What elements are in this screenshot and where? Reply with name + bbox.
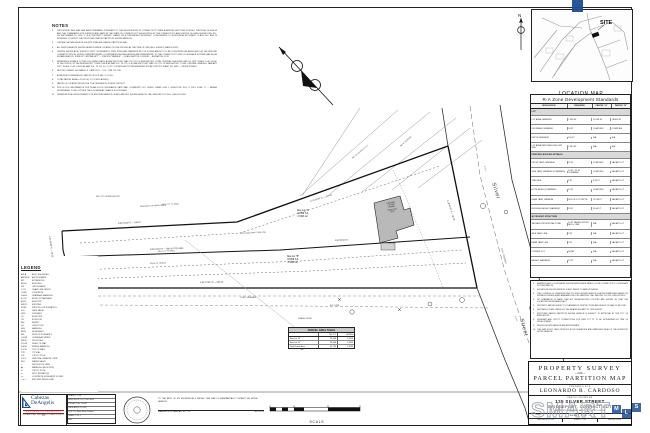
zone-cell-parcel-b: N/A xyxy=(611,137,630,140)
zone-cell-parcel-a: N/A xyxy=(592,146,611,149)
mls-watermark-square-top xyxy=(572,0,583,12)
zone-cell-required: 7,500 SF xyxy=(568,146,593,149)
lot-b-label: New Lot "B"18,869 S.F.0.4332 Ac. xyxy=(276,256,310,265)
zone-cell-parcel-a xyxy=(592,216,611,217)
location-map: SITE xyxy=(531,9,633,82)
title-line-1: PROPERTY SURVEY xyxy=(529,365,631,372)
scale-bar-graphic xyxy=(262,405,372,414)
zone-cell-required: 7,500 SF xyxy=(568,118,593,121)
zone-table-row: REAR YARD LINE 3 FT N/A VACANT LOT xyxy=(531,239,630,248)
zone-cell-regulation: SIDE YARD, MINIMUM (COMBINED) xyxy=(531,171,568,174)
zone-cell-parcel-b: VACANT LOT xyxy=(611,260,630,263)
drawing-info-fields: SCALE: 1" = 20' FIELD BOOK: 173 / PGS. 4… xyxy=(67,394,116,424)
surveyor-name: WASHINGTON CABEZAS, JR., L.S. xyxy=(158,411,190,413)
notes-panel: NOTES 1. THIS SURVEY AND MAP HAS BEEN PR… xyxy=(52,23,217,197)
zone-cell-parcel-b: VACANT LOT xyxy=(611,241,630,244)
mls-watermark-square: S xyxy=(632,403,641,412)
site-note-item: 6. WETLANDS, IF ANY, WERE NOT DELINEATED… xyxy=(533,309,628,311)
mls-watermark-square: M xyxy=(612,405,621,414)
firm-logo-box: Cabezas DeAngelis ENGINEERS & SURVEYORS … xyxy=(20,394,67,426)
site-note-text: THIS MAP IS NOT VALID WITHOUT A LIVE SIG… xyxy=(537,329,628,334)
zone-cell-regulation: PRINCIPAL BUILDING SETBACK xyxy=(531,154,568,157)
zone-cell-parcel-a: 22,656 SF xyxy=(592,118,611,121)
zone-cell-regulation: FRONTAGE, MINIMUM xyxy=(531,127,568,130)
site-note-item: 1. BEARINGS AND COORDINATES SHOWN HEREON… xyxy=(533,283,628,288)
zone-cell-parcel-a: 6.28 FT xyxy=(592,180,611,183)
zone-cell-parcel-b: VACANT LOT xyxy=(611,223,630,226)
area-table-row: Total Parcel Area 41,525 0.9533 xyxy=(289,345,354,348)
notes-title: NOTES xyxy=(52,23,217,28)
note-text: PARCEL IS LOCATED WITHIN THE "R-A" RESID… xyxy=(57,83,217,86)
area-cell-sqft: 18,869 xyxy=(319,341,338,344)
zone-table-row: REAR YARD, MINIMUM 30% OF LOT DEPTH 125.… xyxy=(531,196,630,205)
zone-cell-parcel-a: 26.40 FT xyxy=(592,207,611,210)
note-text: THE MAP SHOWN HEREON IS A SITE PLAN AND … xyxy=(57,42,217,45)
legend-term: EXISTING FENCE LINE xyxy=(32,379,98,382)
zone-table-row: FRONT YARD, MINIMUM 25 FT COMPLIES VACAN… xyxy=(531,159,630,168)
note-item: 5. REFERENCE IS MADE TO THE FOLLOWING MA… xyxy=(52,61,217,69)
zone-cell-regulation: SETBACK FROM STREET LINE xyxy=(531,223,568,226)
zone-table-row: HEIGHT, MAXIMUM 15 FT N/A VACANT LOT xyxy=(531,257,630,266)
zone-cell-required: 50 FT xyxy=(568,127,593,130)
zone-cell-regulation: REAR YARD LINE xyxy=(531,241,568,244)
zone-cell-regulation: ONE SIDE xyxy=(531,180,568,183)
client-name: LEONARDO R. CARDOSO xyxy=(529,388,631,396)
area-cell-acres: 0.9533 xyxy=(338,345,354,348)
notes-list: 1. THIS SURVEY AND MAP HAS BEEN PREPARED… xyxy=(52,30,217,97)
zone-cell-parcel-b: COMPLIES xyxy=(611,127,630,130)
zone-cell-parcel-a: COMPLIES xyxy=(592,189,611,192)
note-text: THIS SURVEY AND MAP HAS BEEN PREPARED PU… xyxy=(57,30,217,41)
firm-address: 3156 MAIN STREET • BRIDGEPORT, CT 06606 … xyxy=(21,415,66,417)
site-notes-list: 1. BEARINGS AND COORDINATES SHOWN HEREON… xyxy=(533,283,628,334)
area-col-sqft: SQ. FT. xyxy=(319,333,338,336)
zone-cell-parcel-b xyxy=(611,155,630,156)
zone-col-parcel-a: PARCEL "A" xyxy=(593,104,612,108)
zone-cell-required: 3 FT xyxy=(568,232,593,235)
zone-cell-parcel-a: COMPLIES xyxy=(592,161,611,164)
lot-b-label-line: 0.4332 Ac. xyxy=(276,262,310,265)
zone-cell-parcel-b: VACANT LOT xyxy=(611,161,630,164)
site-note-text: ELEVATIONS SHOWN HEREON, IF ANY, REFER T… xyxy=(537,289,628,291)
note-text: ALL IMPROVEMENTS SHOWN HEREON WERE LOCAT… xyxy=(57,47,217,50)
zone-cell-parcel-b: 18,869 SF xyxy=(611,118,630,121)
zone-cell-parcel-a: N/A xyxy=(592,232,611,235)
certification-block: TO THE BEST OF MY KNOWLEDGE & BELIEF, TH… xyxy=(158,398,270,424)
zone-table-row: LOT AREA, MINIMUM 7,500 SF 22,656 SF 18,… xyxy=(531,116,630,125)
zone-cell-parcel-b: VACANT LOT xyxy=(611,189,630,192)
zone-cell-parcel-a: N/A xyxy=(592,137,611,140)
mls-watermark-text: SMART xyxy=(531,400,611,421)
site-note-item: 4. NO GUARANTEE IS MADE THAT ALL UNDERGR… xyxy=(533,299,628,304)
zone-cell-regulation: FRONT YARD, MINIMUM xyxy=(531,161,568,164)
zone-cell-regulation: LOT AREA PER DWELLING UNIT, MIN. xyxy=(531,145,568,150)
zone-table-row: BOTH SIDES (COMBINED) 16 FT COMPLIES VAC… xyxy=(531,186,630,195)
zone-table-row: LOT AREA PER DWELLING UNIT, MIN. 7,500 S… xyxy=(531,143,630,152)
zone-cell-parcel-a: N/A xyxy=(592,223,611,226)
site-notes-panel: 1. BEARINGS AND COORDINATES SHOWN HEREON… xyxy=(530,280,631,359)
zone-cell-parcel-a: N/A xyxy=(592,260,611,263)
legend-row: —x— EXISTING FENCE LINE xyxy=(21,379,98,382)
certification-text: TO THE BEST OF MY KNOWLEDGE & BELIEF, TH… xyxy=(158,398,258,403)
site-note-item: 5. PROPERTY MAY BE SUBJECT TO EASEMENTS,… xyxy=(533,305,628,307)
mls-watermark-squares: MLS xyxy=(611,400,641,418)
zone-cell-required: 6 FT xyxy=(568,180,593,183)
legend-title: LEGEND xyxy=(21,265,41,271)
legend-list: A.K.A. ALSO KNOWN AS APPROX. APPROXIMATE… xyxy=(21,274,98,382)
zone-cell-required: 10 FT BEHIND FRONT BLDG. LINE xyxy=(568,222,593,227)
zone-cell-regulation: HEIGHT, MAXIMUM xyxy=(531,260,568,263)
area-col-blank xyxy=(289,333,319,336)
zone-col-required: REQUIRED xyxy=(568,104,593,108)
zone-cell-parcel-b: VACANT LOT xyxy=(611,251,630,254)
scale-bar-label: SCALE xyxy=(262,420,372,424)
zone-cell-parcel-b xyxy=(611,111,630,112)
zone-cell-regulation: LOT xyxy=(531,110,568,113)
graphic-scale-bar: SCALE xyxy=(262,401,372,421)
site-note-item: 8. DRIVEWAY AND UTILITY CONNECTIONS FOR … xyxy=(533,319,628,324)
zone-cell-required xyxy=(568,216,593,217)
note-item: 8. TOTAL PARCEL AREA = 41,525 SQ. FT. (0… xyxy=(52,79,217,82)
zone-cell-parcel-a: 125.46 FT xyxy=(592,198,611,201)
zone-cell-required: 10 FT / 25 FT COMBINED xyxy=(568,170,593,175)
map-north-arrow-icon: N xyxy=(517,12,525,52)
zone-standards-table: R-A Zone Development Standards REGULATIO… xyxy=(530,94,631,278)
firm-logo-icon xyxy=(22,396,31,408)
certification-signature-line: WASHINGTON CABEZAS, JR., L.S. No. 70576 xyxy=(158,410,264,413)
zone-cell-parcel-b: VACANT LOT xyxy=(611,207,630,210)
note-item: 4. UNLESS SHOWN AS A "SURVEY POINT", MON… xyxy=(52,51,217,59)
zone-table-title: R-A Zone Development Standards xyxy=(531,95,630,104)
note-item: 6. RECORD OWNER: LEONARDO R. CARDOSO — V… xyxy=(52,70,217,73)
zone-table-row: DEPTH, MINIMUM 100 FT N/A N/A xyxy=(531,134,630,143)
zone-table-row: SETBACK FROM STREET LINE 10 FT BEHIND FR… xyxy=(531,220,630,229)
site-note-text: WETLANDS, IF ANY, WERE NOT DELINEATED AS… xyxy=(537,309,628,311)
zone-cell-required xyxy=(568,111,593,112)
legend-abbr: —x— xyxy=(21,379,32,382)
zone-cell-required: NONE xyxy=(568,251,593,254)
site-note-item: 3. THE LOCATION OF UNDERGROUND UTILITIES… xyxy=(533,293,628,298)
note-item: 9. PARCEL IS LOCATED WITHIN THE "R-A" RE… xyxy=(52,83,217,86)
zone-cell-regulation: BUILDING HEIGHT, MAXIMUM xyxy=(531,207,568,210)
zone-cell-parcel-a: N/A xyxy=(592,251,611,254)
zone-cell-regulation: ACCESSORY STRUCTURE xyxy=(531,215,568,218)
note-text: TOTAL PARCEL AREA = 41,525 SQ. FT. (0.95… xyxy=(57,79,217,82)
zone-cell-required: 35 FT xyxy=(568,207,593,210)
site-note-text: NO GUARANTEE IS MADE THAT ALL UNDERGROUN… xyxy=(537,299,628,304)
area-table-rows: New Lot "A" 22,656 0.5201 New Lot "B" 18… xyxy=(289,337,354,348)
area-cell-acres: 0.4332 xyxy=(338,341,354,344)
zone-cell-required: 25 FT xyxy=(568,161,593,164)
zone-col-regulation: REGULATION xyxy=(531,104,568,108)
zone-cell-required: 100 FT xyxy=(568,137,593,140)
site-note-item: 7. PROPOSED PARCEL PARTITION SHOWN HEREO… xyxy=(533,313,628,318)
site-marker xyxy=(591,32,599,38)
note-item: 7. ASSESSOR'S REFERENCE: MAP 86 / BLOCK … xyxy=(52,75,217,78)
zone-cell-required: 30% OF LOT DEPTH xyxy=(568,198,593,201)
note-text: REFERENCE IS MADE TO THE FOLLOWING MAPS:… xyxy=(57,61,217,69)
area-cell-label: Total Parcel Area xyxy=(289,345,319,348)
zone-cell-parcel-b: VACANT LOT xyxy=(611,198,630,201)
legend-panel: LEGEND A.K.A. ALSO KNOWN AS APPROX. APPR… xyxy=(21,256,98,392)
zone-cell-parcel-a: COMPLIES xyxy=(592,127,611,130)
firm-tagline: ENGINEERS & SURVEYORS xyxy=(23,410,64,415)
zone-cell-regulation: CORNER LOT xyxy=(531,251,568,254)
zone-cell-parcel-b: VACANT LOT xyxy=(611,171,630,174)
survey-sheet-page: NOTES 1. THIS SURVEY AND MAP HAS BEEN PR… xyxy=(0,0,650,433)
note-item: 3. ALL IMPROVEMENTS SHOWN HEREON WERE LO… xyxy=(52,47,217,50)
zone-table-row: CORNER LOT NONE N/A VACANT LOT xyxy=(531,248,630,257)
note-text: UNLESS SHOWN AS A "SURVEY POINT", MONUME… xyxy=(57,51,217,59)
mls-watermark: SMART MLS xyxy=(531,400,641,421)
drawing-info-field: REV: xyxy=(68,419,115,422)
area-cell-sqft: 22,656 xyxy=(319,337,338,340)
site-note-item: 10. THIS MAP IS NOT VALID WITHOUT A LIVE… xyxy=(533,329,628,334)
zone-cell-parcel-b: N/A xyxy=(611,146,630,149)
site-label: SITE xyxy=(600,20,613,26)
firm-name: Cabezas DeAngelis xyxy=(31,396,54,408)
zone-cell-regulation: LOT AREA, MINIMUM xyxy=(531,118,568,121)
site-note-text: BEARINGS AND COORDINATES SHOWN HEREON AR… xyxy=(537,283,628,288)
zone-cell-parcel-b: VACANT LOT xyxy=(611,232,630,235)
zone-table-row: BUILDING HEIGHT, MAXIMUM 35 FT 26.40 FT … xyxy=(531,205,630,214)
area-cell-label: New Lot "B" xyxy=(289,341,319,344)
area-cell-label: New Lot "A" xyxy=(289,337,319,340)
zone-cell-regulation: BOTH SIDES (COMBINED) xyxy=(531,189,568,192)
zone-col-parcel-b: PARCEL "B" xyxy=(612,104,630,108)
note-item: 11. UNDERGROUND IMPROVEMENTS OR ENCROACH… xyxy=(52,94,217,97)
site-note-text: THE LOCATION OF UNDERGROUND UTILITIES SH… xyxy=(537,293,628,298)
area-cell-acres: 0.5201 xyxy=(338,337,354,340)
zone-cell-regulation: DEPTH, MINIMUM xyxy=(531,137,568,140)
lot-a-label-line: 0.5201 Ac. xyxy=(286,216,320,219)
zone-cell-regulation: SIDE YARD LINE xyxy=(531,232,568,235)
site-note-item: 2. ELEVATIONS SHOWN HEREON, IF ANY, REFE… xyxy=(533,289,628,291)
zone-table-row: SIDE YARD LINE 3 FT N/A VACANT LOT xyxy=(531,230,630,239)
lot-a-label: New Lot "A"22,656 S.F.0.5201 Ac. xyxy=(286,210,320,219)
zone-cell-parcel-a: N/A xyxy=(592,241,611,244)
site-note-text: PROPERTY MAY BE SUBJECT TO EASEMENTS, RE… xyxy=(537,305,628,307)
parcel-area-table: PARCEL AREA TABLE SQ. FT. ACRES New Lot … xyxy=(288,327,355,349)
zone-cell-required: 3 FT xyxy=(568,241,593,244)
note-item: 2. THE MAP SHOWN HEREON IS A SITE PLAN A… xyxy=(52,42,217,45)
zone-cell-parcel-a: COMPLIES xyxy=(592,171,611,174)
note-item: 10. SITE FLOOD INFORMATION PER FEMA FLOO… xyxy=(52,87,217,92)
zone-table-row: SIDE YARD, MINIMUM (COMBINED) 10 FT / 25… xyxy=(531,168,630,177)
zone-cell-parcel-a xyxy=(592,155,611,156)
site-note-text: DRIVEWAY AND UTILITY CONNECTIONS FOR NEW… xyxy=(537,319,628,324)
zone-cell-parcel-b: VACANT LOT xyxy=(611,180,630,183)
area-cell-sqft: 41,525 xyxy=(319,345,338,348)
zone-cell-required xyxy=(568,155,593,156)
site-note-text: PROPOSED PARCEL PARTITION SHOWN HEREON I… xyxy=(537,313,628,318)
zone-table-row: ONE SIDE 6 FT 6.28 FT VACANT LOT xyxy=(531,177,630,186)
mls-watermark-square: L xyxy=(622,409,631,418)
zone-table-row: FRONTAGE, MINIMUM 50 FT COMPLIES COMPLIE… xyxy=(531,125,630,134)
firm-name-2: DeAngelis xyxy=(31,401,54,407)
location-map-streets: SITE xyxy=(532,10,632,81)
note-item: 1. THIS SURVEY AND MAP HAS BEEN PREPARED… xyxy=(52,30,217,41)
zone-cell-parcel-a xyxy=(592,111,611,112)
title-line-2: PARCEL PARTITION MAP xyxy=(529,375,631,385)
zone-table-rows: LOT LOT AREA, MINIMUM 7,500 SF 22,656 SF… xyxy=(531,109,630,266)
note-text: ASSESSOR'S REFERENCE: MAP 86 / BLOCK 884… xyxy=(57,75,217,78)
zone-cell-required: 15 FT xyxy=(568,260,593,263)
zone-cell-required: 16 FT xyxy=(568,189,593,192)
zone-cell-regulation: REAR YARD, MINIMUM xyxy=(531,198,568,201)
area-col-acres: ACRES xyxy=(338,333,354,336)
zone-cell-parcel-b xyxy=(611,216,630,217)
note-text: RECORD OWNER: LEONARDO R. CARDOSO — VOL.… xyxy=(57,70,217,73)
site-note-text: FENCES SHOWN HEREON ARE APPROXIMATE. xyxy=(537,325,628,327)
svg-text:N: N xyxy=(518,13,521,18)
site-note-item: 9. FENCES SHOWN HEREON ARE APPROXIMATE. xyxy=(533,325,628,327)
note-text: UNDERGROUND IMPROVEMENTS OR ENCROACHMENT… xyxy=(57,94,217,97)
note-text: SITE FLOOD INFORMATION PER FEMA FLOOD IN… xyxy=(57,87,217,92)
